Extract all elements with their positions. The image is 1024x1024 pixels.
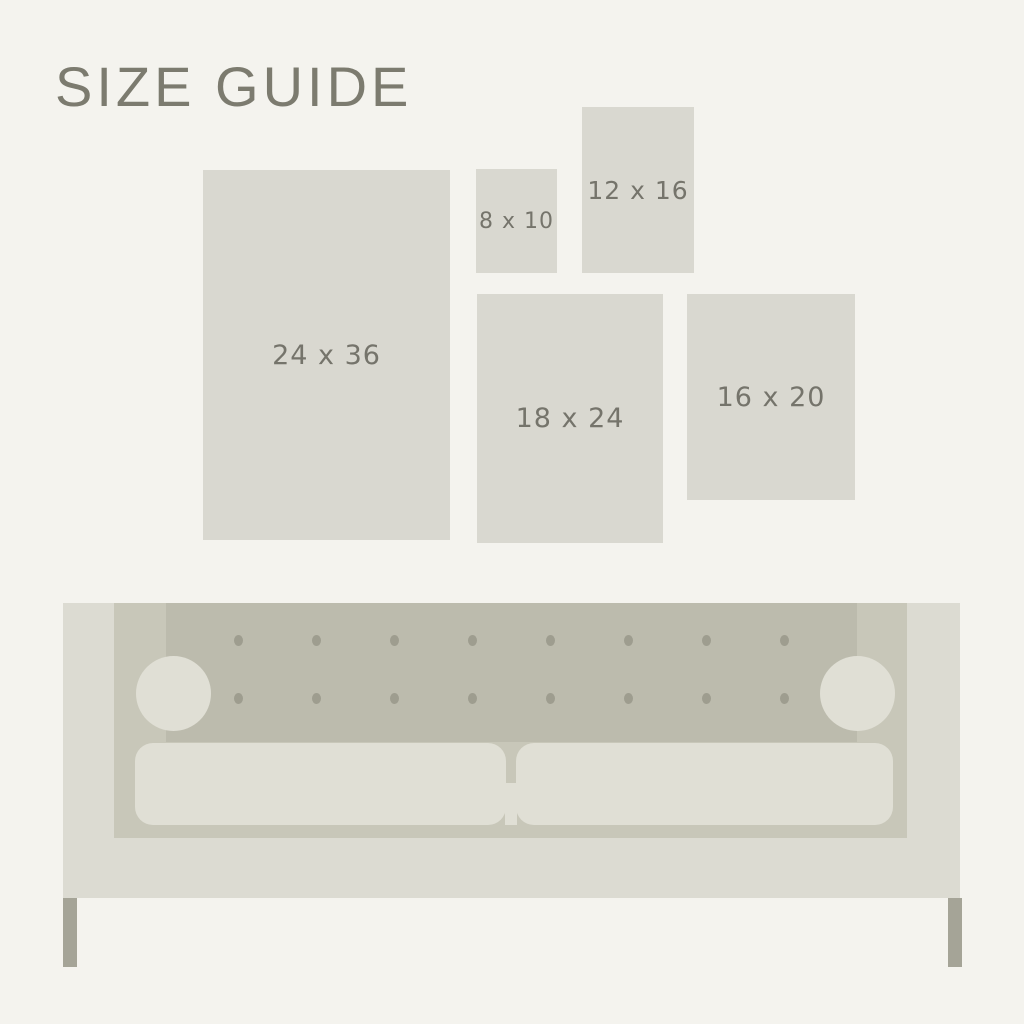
tufting-button — [546, 693, 555, 704]
sofa-leg-left — [63, 898, 77, 967]
tufting-button — [390, 693, 399, 704]
page-title: SIZE GUIDE — [55, 54, 412, 119]
sofa-leg-right — [948, 898, 962, 967]
tufting-button — [702, 635, 711, 646]
tufting-button — [468, 693, 477, 704]
tufting-button — [312, 693, 321, 704]
size-swatch-12x16: 12 x 16 — [582, 107, 694, 273]
size-label-18x24: 18 x 24 — [516, 403, 625, 434]
size-swatch-8x10: 8 x 10 — [476, 169, 557, 273]
seat-cushion-right — [516, 743, 893, 825]
tufting-button — [390, 635, 399, 646]
size-label-24x36: 24 x 36 — [272, 340, 381, 371]
tufting-button — [780, 635, 789, 646]
tufting-button — [234, 635, 243, 646]
tufting-button — [546, 635, 555, 646]
seat-cushion-joint — [505, 783, 517, 825]
seat-cushion-left — [135, 743, 506, 825]
size-swatch-18x24: 18 x 24 — [477, 294, 663, 543]
tufting-button — [624, 635, 633, 646]
size-label-8x10: 8 x 10 — [479, 209, 554, 234]
tufting-button — [468, 635, 477, 646]
bolster-pillow-right — [820, 656, 895, 731]
tufting-button — [312, 635, 321, 646]
tufting-button — [234, 693, 243, 704]
tufting-button — [702, 693, 711, 704]
size-swatch-24x36: 24 x 36 — [203, 170, 450, 540]
bolster-pillow-left — [136, 656, 211, 731]
sofa-back-panel — [166, 603, 857, 742]
size-swatch-16x20: 16 x 20 — [687, 294, 855, 500]
size-label-16x20: 16 x 20 — [717, 382, 826, 413]
tufting-button — [624, 693, 633, 704]
size-label-12x16: 12 x 16 — [587, 176, 688, 205]
tufting-button — [780, 693, 789, 704]
